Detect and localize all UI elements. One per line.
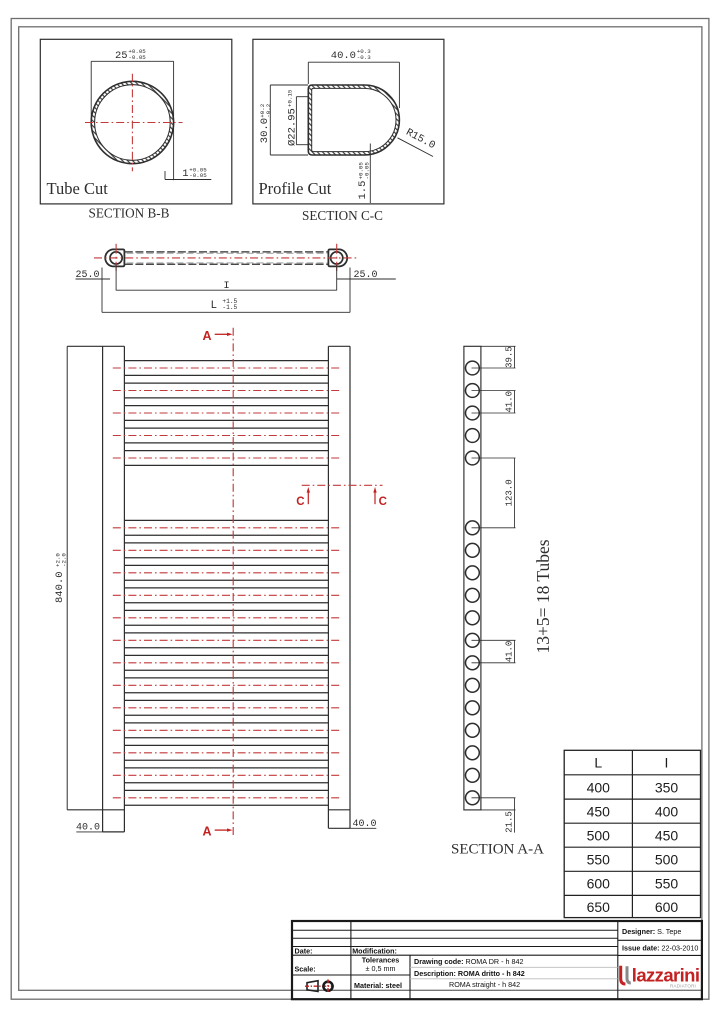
svg-text:RADIATORI: RADIATORI (670, 983, 696, 988)
svg-text:1: 1 (182, 168, 188, 180)
svg-text:400: 400 (587, 779, 611, 795)
svg-text:40.0: 40.0 (352, 819, 376, 830)
svg-text:21.5: 21.5 (504, 811, 514, 833)
svg-text:I: I (223, 280, 229, 292)
svg-text:Modification:: Modification: (352, 947, 397, 956)
svg-text:550: 550 (587, 852, 611, 868)
svg-text:L: L (594, 755, 602, 771)
svg-text:Drawing code: ROMA DR - h 842: Drawing code: ROMA DR - h 842 (414, 957, 523, 966)
svg-text:600: 600 (587, 876, 611, 892)
svg-text:650: 650 (587, 899, 611, 915)
svg-text:Material: steel: Material: steel (354, 981, 402, 990)
svg-text:Ø22.95: Ø22.95 (287, 108, 299, 146)
svg-text:ROMA straight - h 842: ROMA straight - h 842 (449, 980, 520, 989)
svg-text:Description: ROMA dritto - h 8: Description: ROMA dritto - h 842 (414, 969, 525, 978)
svg-text:41.0: 41.0 (504, 391, 514, 413)
svg-text:C: C (296, 496, 304, 508)
svg-text:40.0: 40.0 (331, 50, 356, 62)
svg-text:A: A (203, 825, 212, 839)
svg-text:13+5= 18 Tubes: 13+5= 18 Tubes (533, 539, 553, 653)
svg-text:+0.15: +0.15 (287, 89, 294, 107)
svg-text:500: 500 (587, 828, 611, 844)
svg-text:1.5: 1.5 (357, 181, 369, 200)
svg-text:840.0: 840.0 (54, 571, 66, 603)
svg-text:Scale:: Scale: (295, 965, 316, 974)
svg-text:-2.0: -2.0 (60, 553, 67, 567)
svg-text:Profile Cut: Profile Cut (259, 179, 332, 198)
svg-text:-0.2: -0.2 (265, 103, 272, 117)
svg-text:Date:: Date: (295, 947, 313, 956)
svg-text:39.5: 39.5 (504, 346, 514, 368)
svg-text:-0.05: -0.05 (128, 54, 146, 61)
svg-text:550: 550 (655, 876, 679, 892)
svg-text:25.0: 25.0 (353, 270, 377, 281)
svg-text:Designer: S. Tepe: Designer: S. Tepe (622, 927, 681, 936)
svg-text:L: L (211, 300, 218, 312)
svg-text:123.0: 123.0 (504, 479, 514, 506)
svg-text:Issue date: 22-03-2010: Issue date: 22-03-2010 (622, 944, 698, 953)
svg-text:40.0: 40.0 (76, 822, 100, 833)
svg-text:400: 400 (655, 803, 679, 819)
svg-text:-1.5: -1.5 (222, 304, 237, 311)
svg-text:600: 600 (655, 899, 679, 915)
svg-text:30.0: 30.0 (259, 118, 271, 143)
svg-text:41.0: 41.0 (504, 641, 514, 663)
svg-text:C: C (379, 496, 387, 508)
svg-text:-0.05: -0.05 (363, 162, 370, 180)
svg-text:25.0: 25.0 (75, 270, 99, 281)
svg-text:350: 350 (655, 779, 679, 795)
svg-text:450: 450 (655, 828, 679, 844)
svg-text:± 0,5 mm: ± 0,5 mm (366, 964, 396, 973)
svg-text:450: 450 (587, 803, 611, 819)
svg-text:-0.05: -0.05 (189, 172, 207, 179)
svg-text:25: 25 (115, 50, 128, 62)
svg-text:SECTION A-A: SECTION A-A (451, 842, 544, 858)
svg-text:A: A (203, 329, 212, 343)
svg-text:SECTION B-B: SECTION B-B (89, 205, 170, 220)
svg-text:Tube Cut: Tube Cut (47, 179, 109, 198)
svg-text:-0.3: -0.3 (357, 54, 371, 61)
svg-text:500: 500 (655, 852, 679, 868)
svg-text:I: I (665, 755, 669, 771)
svg-text:SECTION C-C: SECTION C-C (302, 208, 383, 223)
